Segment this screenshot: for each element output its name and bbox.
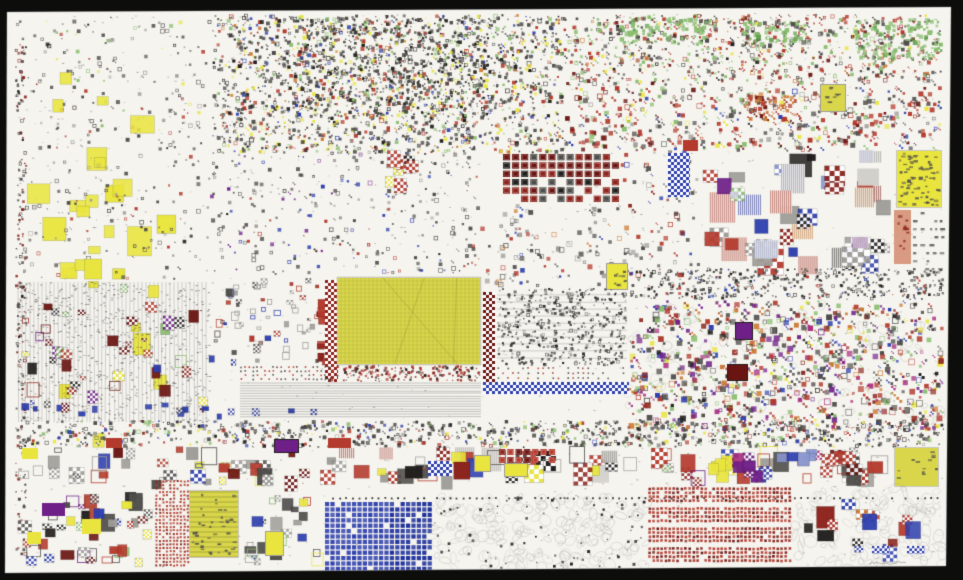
artwork-photo	[0, 0, 963, 580]
artwork-canvas	[0, 0, 963, 580]
